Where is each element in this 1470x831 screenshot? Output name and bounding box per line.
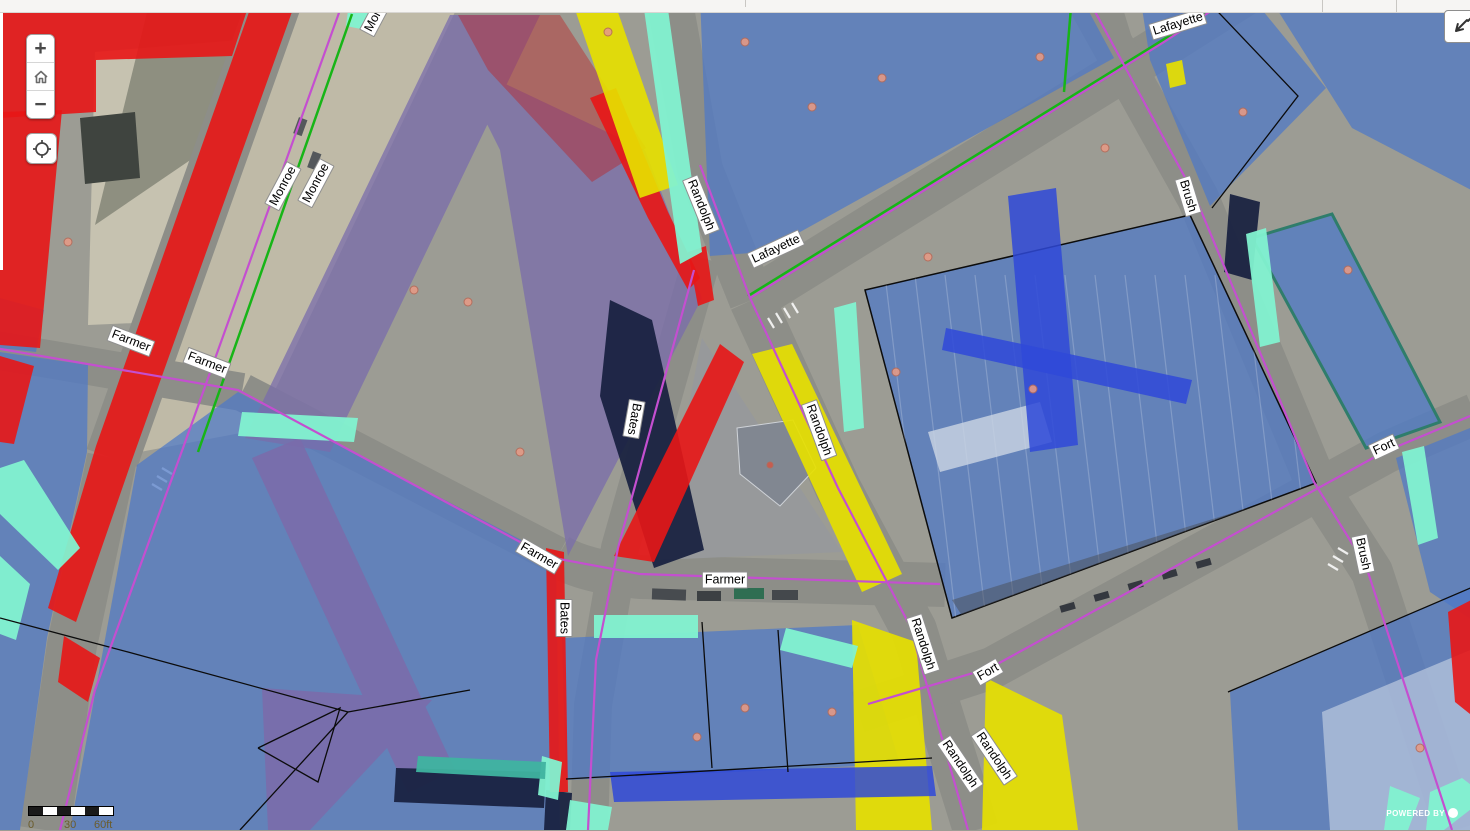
scale-bar: 0 30 60ft <box>28 806 114 830</box>
browser-top-strip <box>0 0 1470 13</box>
home-icon <box>33 69 49 85</box>
zoom-control-group: + − <box>26 34 55 119</box>
scale-label-0: 0 <box>28 819 34 831</box>
zoom-in-button[interactable]: + <box>27 35 54 62</box>
aerial-map-canvas[interactable] <box>0 0 1470 830</box>
locate-crosshair-icon <box>32 139 52 159</box>
attribution-text: POWERED BY <box>1386 809 1445 818</box>
collapse-arrow-icon <box>1447 14 1470 40</box>
browser-left-strip <box>0 12 3 270</box>
esri-globe-icon <box>1448 808 1458 818</box>
strip-tick <box>1396 0 1397 12</box>
strip-tick <box>1322 0 1323 12</box>
scale-label-30: 30 <box>64 819 76 831</box>
map-attribution: POWERED BY <box>1386 808 1458 818</box>
locate-button[interactable] <box>26 133 57 164</box>
home-button[interactable] <box>27 62 54 90</box>
scale-bar-labels: 0 30 60ft <box>28 816 114 830</box>
collapse-panel-button[interactable] <box>1444 10 1470 43</box>
scale-label-60: 60ft <box>94 819 112 831</box>
scale-bar-segments <box>28 806 114 816</box>
strip-tick <box>745 0 746 7</box>
zoom-out-button[interactable]: − <box>27 90 54 118</box>
